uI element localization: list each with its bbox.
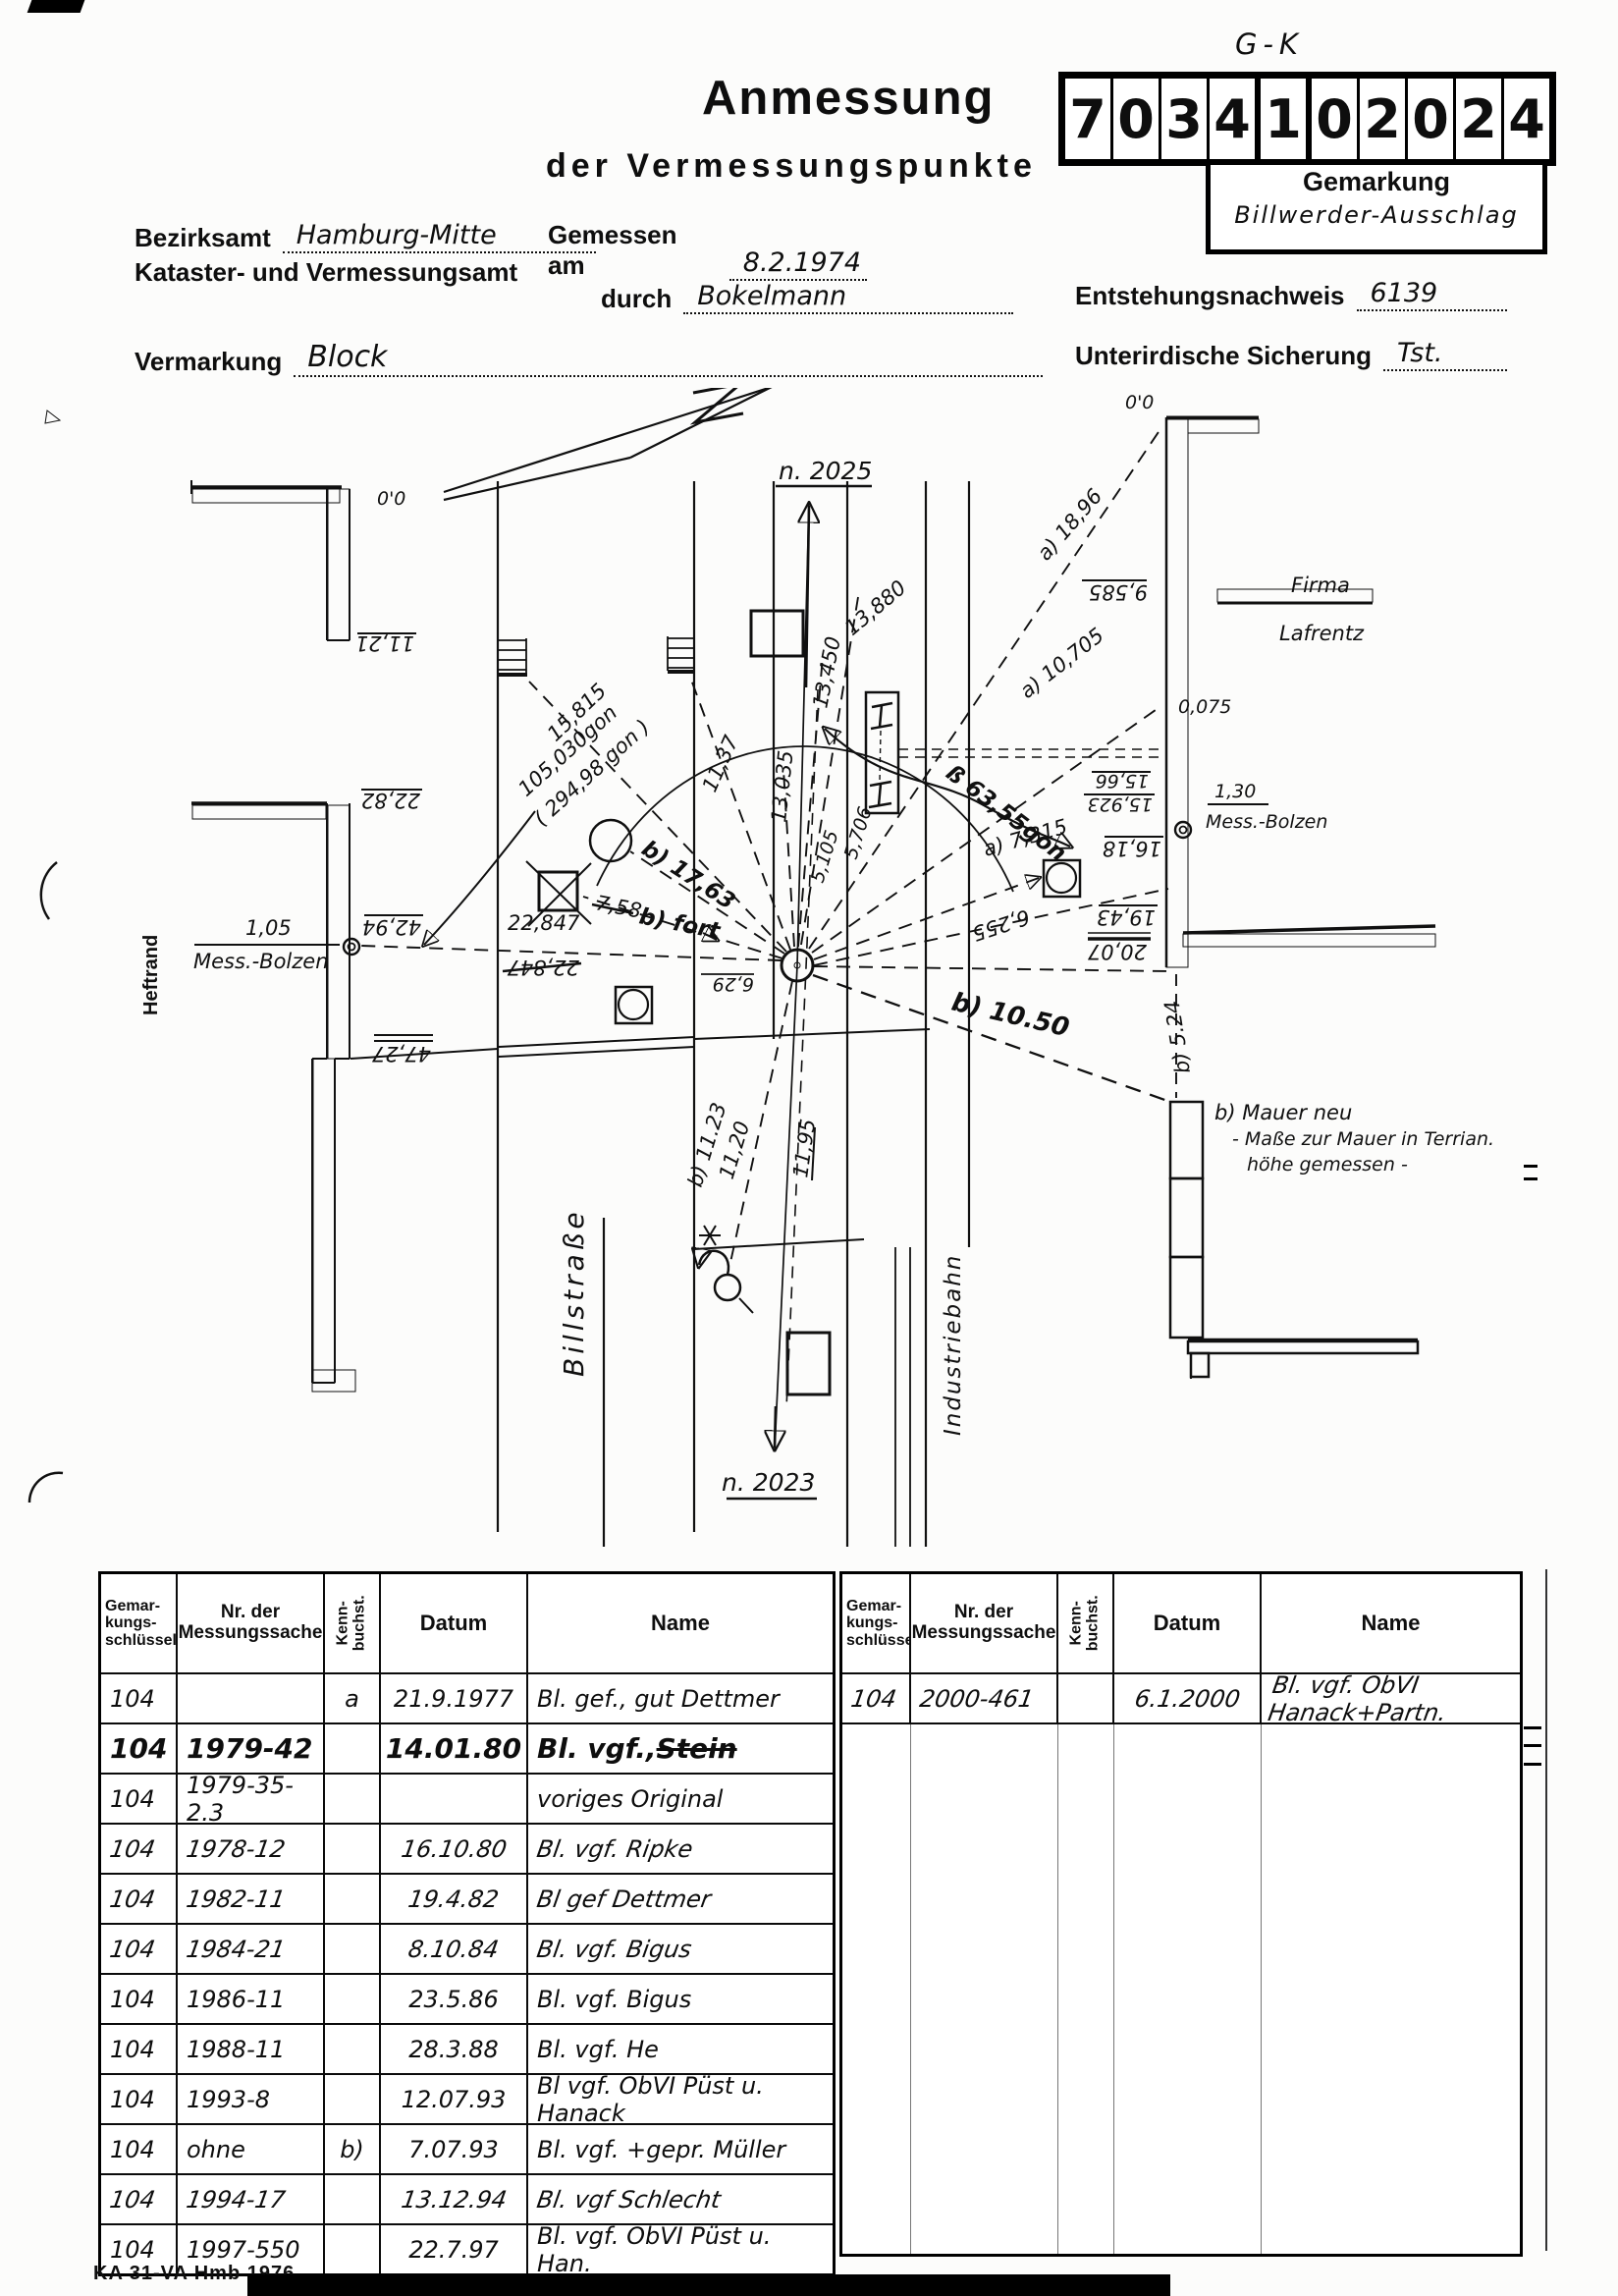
table-cell: 28.3.88 (381, 2025, 528, 2073)
north-point-label: n. 2023 (722, 1468, 815, 1497)
form-subtitle: der Vermessungspunkte (546, 147, 1037, 186)
table-cell: 1978-12 (178, 1825, 325, 1873)
chain-measure: 0'0 (1125, 392, 1154, 413)
gk-annotation: G-K (1235, 27, 1304, 61)
chain-measure: 11,21 (355, 631, 414, 655)
table-row: 1041988-1128.3.88Bl. vgf. He (101, 2023, 833, 2073)
bolt-name-label: Mess.-Bolzen (193, 950, 329, 973)
digit-cell: 0 (1408, 79, 1456, 159)
empty-column (1114, 1724, 1262, 2254)
empty-column (842, 1724, 911, 2254)
column-header-messungssache: Nr. derMessungssache (178, 1574, 325, 1672)
table-cell (381, 1775, 528, 1823)
table-cell: 1979-42 (178, 1724, 325, 1773)
table-cell (178, 1674, 325, 1722)
scan-artifact-arcs (29, 410, 63, 1503)
digit-cell: 0 (1113, 79, 1161, 159)
measurement-label: 6,29 (713, 973, 754, 995)
table-cell: 104 (101, 2025, 178, 2073)
table-body: 104a21.9.1977Bl. gef., gut Dettmer104197… (101, 1672, 833, 2273)
table-cell: 104 (101, 2125, 178, 2173)
chain-measure: 19,43 (1097, 905, 1156, 929)
measurement-label: 13,880 (840, 575, 911, 640)
table-row: 1041994-1713.12.94Bl. vgf Schlecht (101, 2173, 833, 2223)
field-label: durch (601, 284, 672, 314)
measurement-label: 22,847 (508, 911, 580, 935)
firm-label: Firma (1291, 574, 1350, 597)
table-cell: 104 (101, 1775, 178, 1823)
box-circle-symbol (1044, 860, 1080, 897)
table-cell: 19.4.82 (381, 1875, 528, 1923)
digit-cell: 1 (1261, 79, 1312, 159)
small-building (751, 611, 803, 656)
digit-cell: 4 (1210, 79, 1261, 159)
measurement-label: 11,37 (698, 732, 744, 795)
table-cell: Bl. vgf. ÖbVI Hanack+Partn. (1262, 1674, 1520, 1722)
table-cell: 104 (101, 1925, 178, 1973)
table-cell (325, 1875, 381, 1923)
table-header-row: Gemar-kungs-schlüssel Nr. derMessungssac… (842, 1574, 1520, 1672)
table-cell: 7.07.93 (381, 2125, 528, 2173)
table-cell (325, 1925, 381, 1973)
boundary-lines (351, 1029, 930, 1249)
table-cell: Bl. vgf. Ripke (528, 1825, 833, 1873)
measurement-label: b) 5.24 (1160, 999, 1195, 1075)
chain-measure: 47,27 (371, 1042, 431, 1066)
chain-measure: 15,923 (1088, 793, 1153, 815)
table-cell: 6.1.2000 (1114, 1674, 1262, 1722)
field-value: Bokelmann (683, 281, 1013, 314)
wall-note: höhe gemessen - (1247, 1154, 1408, 1175)
table-row: 1041993-812.07.93Bl vgf. ÖbVI Püst u. Ha… (101, 2073, 833, 2123)
digit-cell: 4 (1504, 79, 1549, 159)
wall-note: - Maße zur Mauer in Terrian. (1232, 1128, 1494, 1150)
north-arrow (444, 388, 772, 500)
bolt-name-label: Mess.-Bolzen (1206, 811, 1327, 833)
table-cell: 14.01.80 (381, 1724, 528, 1773)
table-cell: 1979-35-2.3 (178, 1775, 325, 1823)
table-cell: 1988-11 (178, 2025, 325, 2073)
field-label: Vermarkung (135, 347, 282, 377)
bolt-distance-label: 1,30 (1214, 781, 1256, 802)
table-cell: 104 (842, 1674, 911, 1722)
measurement-label: 6,255 (969, 904, 1033, 945)
bolt-symbol-left (344, 939, 359, 955)
field-label: Entstehungsnachweis (1075, 281, 1345, 311)
measurement-label: b) 10.50 (948, 988, 1071, 1044)
box-circle-symbol (616, 987, 652, 1023)
table-row: 1041986-1123.5.86Bl. vgf. Bigus (101, 1973, 833, 2023)
field-label: Bezirksamt (135, 223, 271, 253)
digit-cell: 2 (1456, 79, 1504, 159)
table-cell (325, 1775, 381, 1823)
empty-column (1058, 1724, 1114, 2254)
table-cell: 104 (101, 2175, 178, 2223)
table-cell: Bl gef Dettmer (528, 1875, 833, 1923)
table-cell: a (325, 1674, 381, 1722)
table-row: 1041984-218.10.84Bl. vgf. Bigus (101, 1923, 833, 1973)
table-cell (1058, 1674, 1114, 1722)
table-header-row: Gemar-kungs-schlüssel Nr. derMessungssac… (101, 1574, 833, 1672)
gemarkung-label: Gemarkung (1303, 167, 1450, 197)
table-cell: 1986-11 (178, 1975, 325, 2023)
culvert-symbol (499, 638, 527, 675)
field-durch: durch Bokelmann (601, 281, 1013, 314)
street-name-label: Billstraße (558, 1208, 590, 1377)
gemarkung-value: Billwerder-Ausschlag (1234, 201, 1519, 229)
table-cell: 8.10.84 (381, 1925, 528, 1973)
chain-measure: 22,82 (361, 789, 420, 812)
table-cell (325, 1825, 381, 1873)
right-wall (1166, 417, 1435, 967)
survey-sketch: n. 2025 n. 2023 Billstraße Industriebahn… (0, 388, 1618, 1557)
column-header-datum: Datum (381, 1574, 528, 1672)
table-cell: 1982-11 (178, 1875, 325, 1923)
field-kataster: Kataster- und Vermessungsamt (135, 257, 517, 288)
table-cell (325, 2225, 381, 2273)
chain-measure: 42,94 (362, 915, 421, 939)
table-cell: 16.10.80 (381, 1825, 528, 1873)
lamp-symbol (699, 1226, 753, 1313)
edge-tick (1524, 1763, 1541, 1766)
table-cell: Bl. vgf. Bigus (528, 1925, 833, 1973)
shaft-circle-symbol (590, 820, 631, 861)
gate-posts-symbol (866, 692, 898, 813)
table-cell: 13.12.94 (381, 2175, 528, 2223)
wall-note: b) Mauer neu (1214, 1101, 1352, 1124)
digit-cell: 2 (1360, 79, 1408, 159)
table-row: 1041982-1119.4.82Bl gef Dettmer (101, 1873, 833, 1923)
table-cell: 104 (101, 2075, 178, 2123)
table-cell: 22.7.97 (381, 2225, 528, 2273)
north-point-label: n. 2025 (779, 457, 872, 485)
table-cell: voriges Original (528, 1775, 833, 1823)
table-cell: 104 (101, 1724, 178, 1773)
chain-measure: 20,07 (1087, 940, 1147, 963)
point-number-grid: 7 0 3 4 1 0 2 0 2 4 (1058, 72, 1556, 166)
digit-cell: 3 (1161, 79, 1210, 159)
measurement-label: 11,95 (788, 1118, 820, 1179)
chain-measure: 16,18 (1103, 837, 1161, 860)
firm-label: Lafrentz (1279, 622, 1365, 645)
table-cell: 104 (101, 1674, 178, 1722)
scanned-survey-form: { "header": { "title_line1": "Anmessung"… (0, 0, 1618, 2296)
table-body: 1042000-4616.1.2000Bl. vgf. ÖbVI Hanack+… (842, 1672, 1520, 1724)
field-bezirksamt: Bezirksamt Hamburg-Mitte (135, 220, 596, 253)
chain-measure: 9,585 (1089, 580, 1148, 604)
measurement-label: 13,035 (767, 749, 798, 824)
table-cell: 2000-461 (911, 1674, 1058, 1722)
table-cell: 1984-21 (178, 1925, 325, 1973)
table-cell (325, 1975, 381, 2023)
table-row: 1041979-35-2.3voriges Original (101, 1773, 833, 1823)
bolt-symbol-right (1175, 822, 1191, 838)
column-header-name: Name (1262, 1574, 1520, 1672)
field-vermarkung: Vermarkung Block (135, 340, 1043, 377)
field-label: Unterirdische Sicherung (1075, 341, 1372, 371)
edge-tick (1524, 1744, 1541, 1747)
table-row: 1041979-4214.01.80Bl. vgf., Stein (101, 1722, 833, 1773)
table-cell: Bl. gef., gut Dettmer (528, 1674, 833, 1722)
table-row: 104ohneb)7.07.93Bl. vgf. +gepr. Müller (101, 2123, 833, 2173)
empty-column (911, 1724, 1058, 2254)
scan-artifact (27, 0, 85, 13)
small-building (787, 1333, 830, 1394)
margin-label: Heftrand (140, 935, 162, 1015)
table-cell: Bl. vgf. +gepr. Müller (528, 2125, 833, 2173)
traverse-line (775, 501, 818, 1450)
column-header-kennbuchstabe: Kenn-buchst. (325, 1574, 381, 1672)
measurement-label: a) 10,705 (1015, 624, 1108, 703)
table-cell (325, 2075, 381, 2123)
field-value: Tst. (1383, 338, 1507, 371)
table-cell: 104 (101, 1975, 178, 2023)
table-cell: 21.9.1977 (381, 1674, 528, 1722)
table-row: 1041978-1216.10.80Bl. vgf. Ripke (101, 1823, 833, 1873)
bolt-distance-label: 1,05 (245, 916, 292, 940)
table-cell: 104 (101, 1875, 178, 1923)
empty-column (1262, 1724, 1520, 2254)
railway-name-label: Industriebahn (941, 1254, 966, 1436)
page-edge-line (1545, 1569, 1547, 2251)
field-unterirdische-sicherung: Unterirdische Sicherung Tst. (1075, 338, 1507, 371)
column-header-kennbuchstabe: Kenn-buchst. (1058, 1574, 1114, 1672)
table-cell: ohne (178, 2125, 325, 2173)
edge-tick (1524, 1726, 1541, 1729)
field-label: Gemessen am (548, 220, 718, 281)
measurement-label: a) 18,96 (1033, 484, 1107, 565)
table-cell: b) (325, 2125, 381, 2173)
scan-edge-bar (247, 2274, 1170, 2296)
chain-measure: 15,66 (1096, 770, 1149, 792)
table-row: 1042000-4616.1.2000Bl. vgf. ÖbVI Hanack+… (842, 1672, 1520, 1724)
form-title: Anmessung (702, 71, 995, 126)
table-cell: Bl. vgf. Bigus (528, 1975, 833, 2023)
measurement-label: b) fort (637, 903, 724, 945)
table-cell: Bl. vgf. He (528, 2025, 833, 2073)
digit-cell: 0 (1312, 79, 1360, 159)
column-header-gemarkungsschluessel: Gemar-kungs-schlüssel (101, 1574, 178, 1672)
table-cell: Bl. vgf., Stein (528, 1724, 833, 1773)
table-cell (325, 1724, 381, 1773)
measurement-log-table-right: Gemar-kungs-schlüssel Nr. derMessungssac… (839, 1571, 1523, 2257)
measurement-label: 5,706 (840, 804, 877, 861)
table-cell: 104 (101, 1825, 178, 1873)
field-value: 8.2.1974 (729, 247, 867, 281)
empty-table-area (842, 1724, 1520, 2254)
culvert-symbol (668, 636, 694, 672)
measurement-log-table-left: Gemar-kungs-schlüssel Nr. derMessungssac… (98, 1571, 836, 2276)
table-row: 104a21.9.1977Bl. gef., gut Dettmer (101, 1672, 833, 1722)
table-cell: 1994-17 (178, 2175, 325, 2223)
table-cell: 1993-8 (178, 2075, 325, 2123)
digit-cell: 7 (1065, 79, 1113, 159)
table-cell: 12.07.93 (381, 2075, 528, 2123)
column-header-name: Name (528, 1574, 833, 1672)
table-cell (325, 2025, 381, 2073)
field-value: 6139 (1357, 278, 1508, 311)
table-cell (325, 2175, 381, 2223)
table-cell: Bl. vgf. ÖbVI Püst u. Han. (528, 2225, 833, 2273)
column-header-messungssache: Nr. derMessungssache (911, 1574, 1058, 1672)
field-gemessen-am: Gemessen am 8.2.1974 (548, 220, 867, 281)
chain-measure: 0,075 (1178, 696, 1231, 718)
chain-measure: 0'0 (377, 488, 405, 510)
table-cell: Bl. vgf Schlecht (528, 2175, 833, 2223)
field-value: Block (294, 340, 1043, 377)
column-header-gemarkungsschluessel: Gemar-kungs-schlüssel (842, 1574, 911, 1672)
gemarkung-box: Gemarkung Billwerder-Ausschlag (1206, 160, 1547, 254)
street-lines (498, 481, 969, 1547)
column-header-datum: Datum (1114, 1574, 1262, 1672)
table-cell: 23.5.86 (381, 1975, 528, 2023)
measurement-label: 13,450 (808, 634, 845, 710)
field-entstehungsnachweis: Entstehungsnachweis 6139 (1075, 278, 1507, 311)
table-cell: Bl vgf. ÖbVI Püst u. Hanack (528, 2075, 833, 2123)
